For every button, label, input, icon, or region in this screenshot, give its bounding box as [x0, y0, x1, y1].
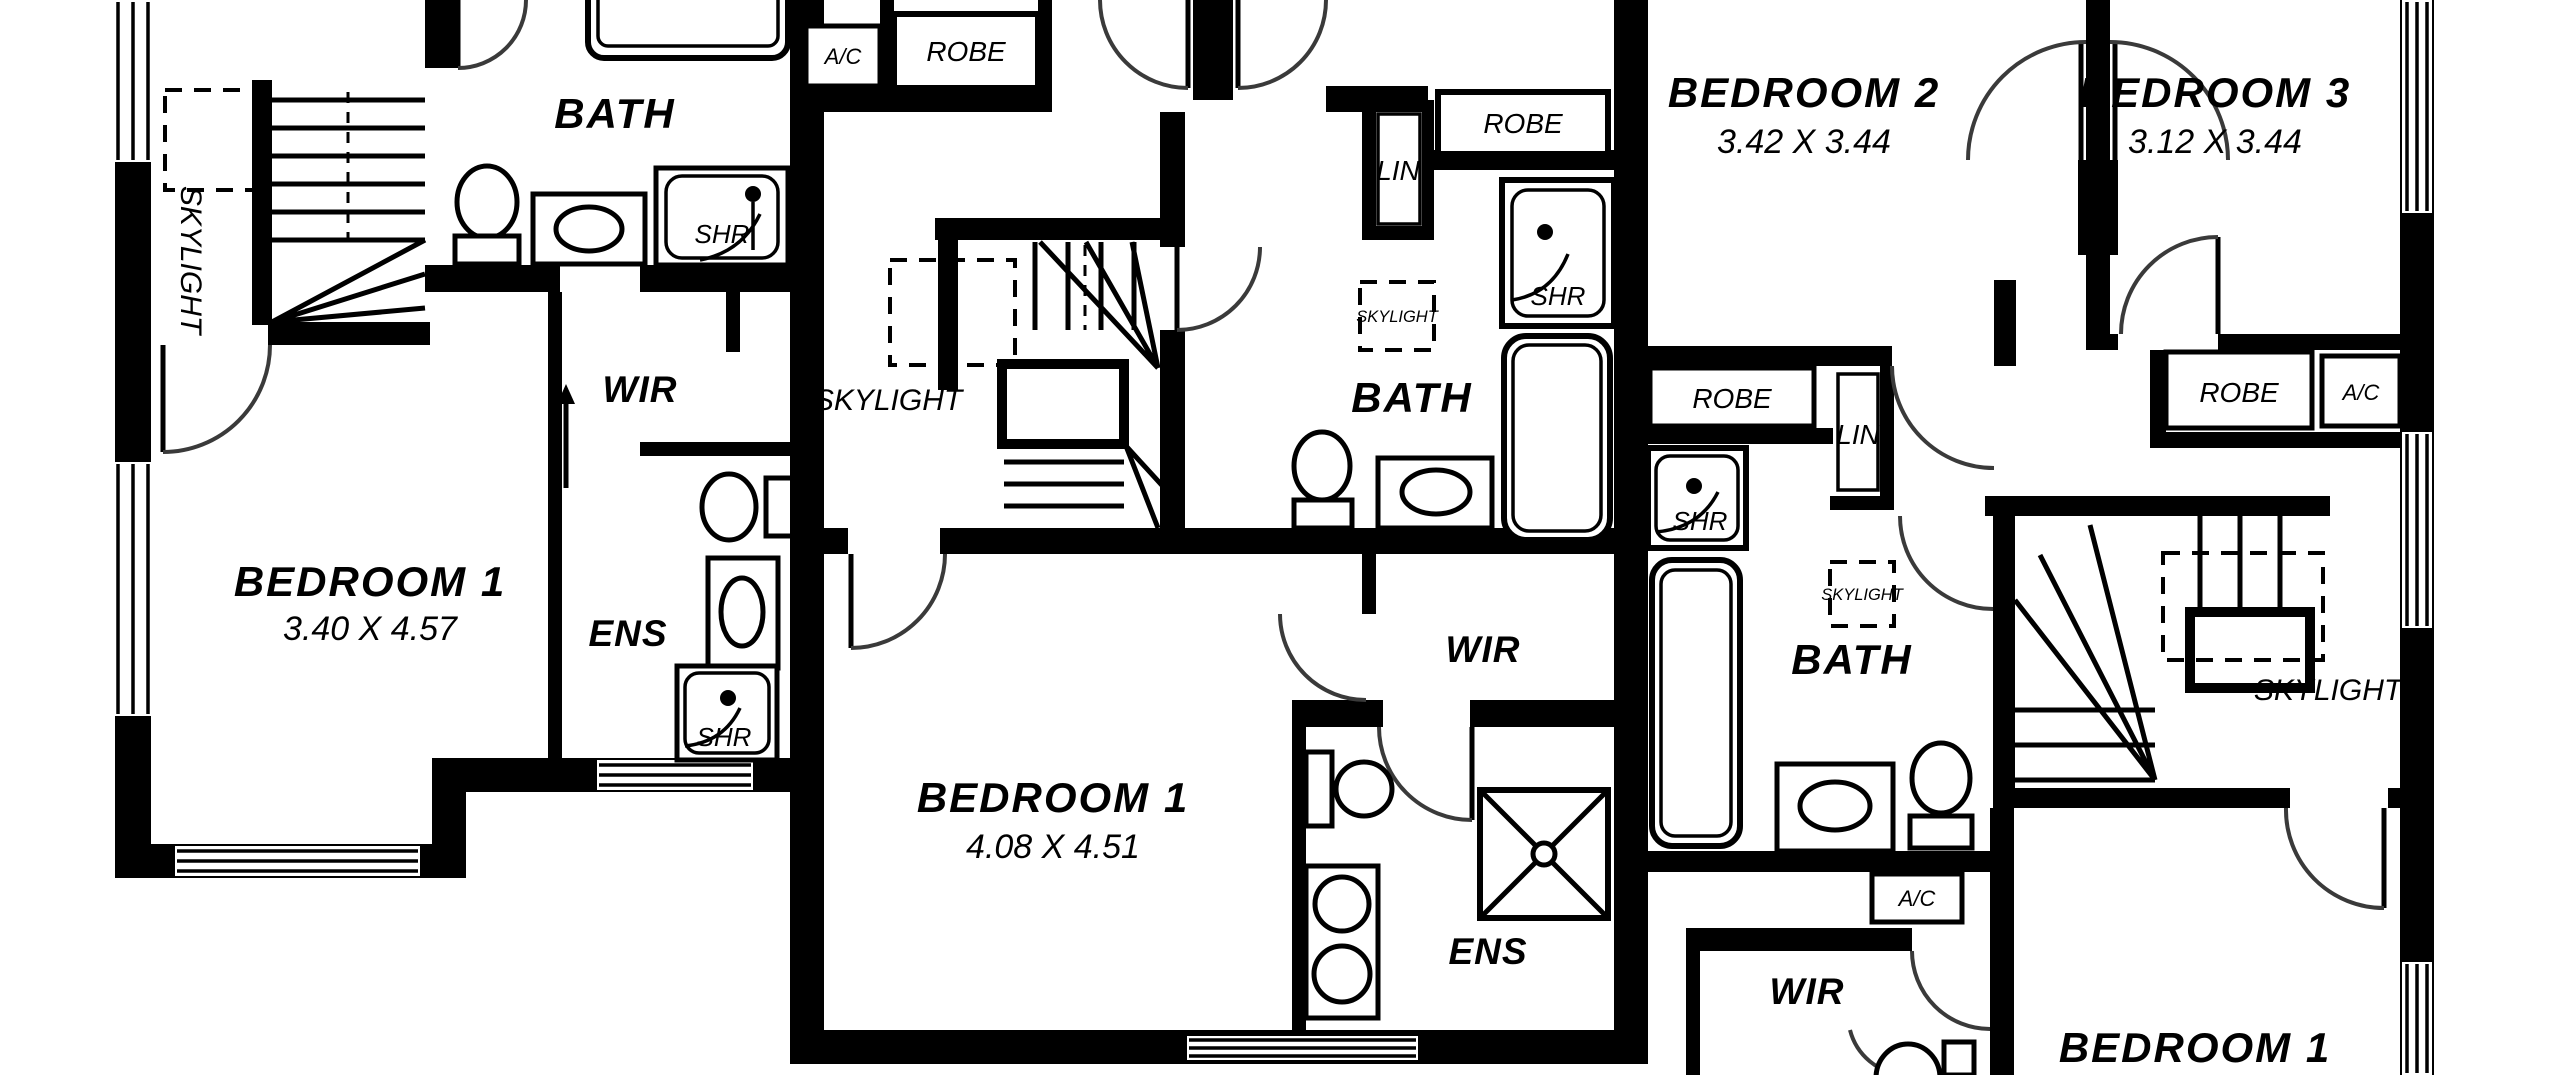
toilet [1306, 752, 1332, 826]
toilet [1944, 1042, 1974, 1075]
skylight-outline-left [165, 90, 265, 190]
left-unit: SKYLIGHT BATH SHR WIR ENS SHR BEDROOM 1 … [113, 0, 800, 878]
bedroom3-label: BEDROOM 3 [2079, 69, 2351, 116]
wir-label: WIR [603, 369, 678, 410]
right-unit: BEDROOM 2 3.42 X 3.44 BEDROOM 3 3.12 X 3… [1614, 0, 2434, 1075]
left-ens-fixtures [677, 474, 798, 760]
toilet [1294, 432, 1350, 500]
lin-label: LIN [1836, 419, 1880, 450]
middle-unit: A/C ROBE LIN ROBE SHR SKYLIGHT SKYLIGHT … [790, 0, 1620, 1064]
bathtub [588, 0, 788, 58]
robe-label: ROBE [1692, 383, 1772, 414]
robe-label: ROBE [1483, 108, 1563, 139]
bath-label: BATH [554, 90, 676, 137]
shr-label: SHR [1531, 281, 1586, 311]
robe-label: ROBE [2199, 377, 2279, 408]
right-unit-walls [1643, 0, 2434, 1075]
party-wall-2 [1614, 0, 1648, 1064]
ens-label: ENS [1448, 931, 1527, 972]
ac-label: A/C [823, 44, 862, 69]
party-wall-1 [790, 0, 824, 1064]
floorplan-canvas: SKYLIGHT BATH SHR WIR ENS SHR BEDROOM 1 … [0, 0, 2560, 1075]
bath-label: BATH [1351, 374, 1473, 421]
right-ens-partial-fixtures [1876, 1042, 1974, 1075]
ens-label: ENS [588, 613, 667, 654]
robe-label: ROBE [926, 36, 1006, 67]
bedroom3-dims: 3.12 X 3.44 [2128, 123, 2302, 161]
bedroom1-label: BEDROOM 1 [2059, 1024, 2331, 1071]
bathtub [1652, 560, 1740, 846]
bedroom1-label: BEDROOM 1 [917, 774, 1189, 821]
shr-label: SHR [695, 219, 750, 249]
toilet [457, 166, 517, 238]
bathtub [1504, 336, 1610, 540]
bedroom2-dims: 3.42 X 3.44 [1717, 123, 1891, 161]
ac-label: A/C [1897, 886, 1936, 911]
middle-bath-fixtures [1294, 180, 1614, 540]
shower-head [745, 186, 761, 202]
skylight-label-left: SKYLIGHT [174, 186, 207, 337]
middle-ens-fixtures [1306, 752, 1608, 1018]
skylight-label-bath: SKYLIGHT [1356, 308, 1440, 326]
wir-label: WIR [1446, 629, 1521, 670]
bedroom2-label: BEDROOM 2 [1668, 69, 1940, 116]
right-unit-stairs [2015, 516, 2323, 780]
shower-head [1537, 224, 1553, 240]
shower [656, 168, 788, 265]
bedroom1-label: BEDROOM 1 [234, 558, 506, 605]
shr-label: SHR [1673, 506, 1728, 536]
middle-unit-windows [1187, 1036, 1418, 1060]
lin-label: LIN [1376, 155, 1420, 186]
toilet [1912, 743, 1970, 813]
skylight-label-stair: SKYLIGHT [814, 384, 965, 417]
bedroom1-dims: 4.08 X 4.51 [966, 828, 1140, 866]
skylight-label-stair: SKYLIGHT [2254, 674, 2405, 707]
bath-label: BATH [1791, 636, 1913, 683]
shower-head [1686, 478, 1702, 494]
bedroom1-dims: 3.40 X 4.57 [283, 610, 458, 648]
ac-label: A/C [2341, 380, 2380, 405]
skylight-label-bath: SKYLIGHT [1821, 586, 1905, 604]
shower-head [720, 690, 736, 706]
wir-label: WIR [1770, 971, 1845, 1012]
shr-label: SHR [697, 722, 752, 752]
